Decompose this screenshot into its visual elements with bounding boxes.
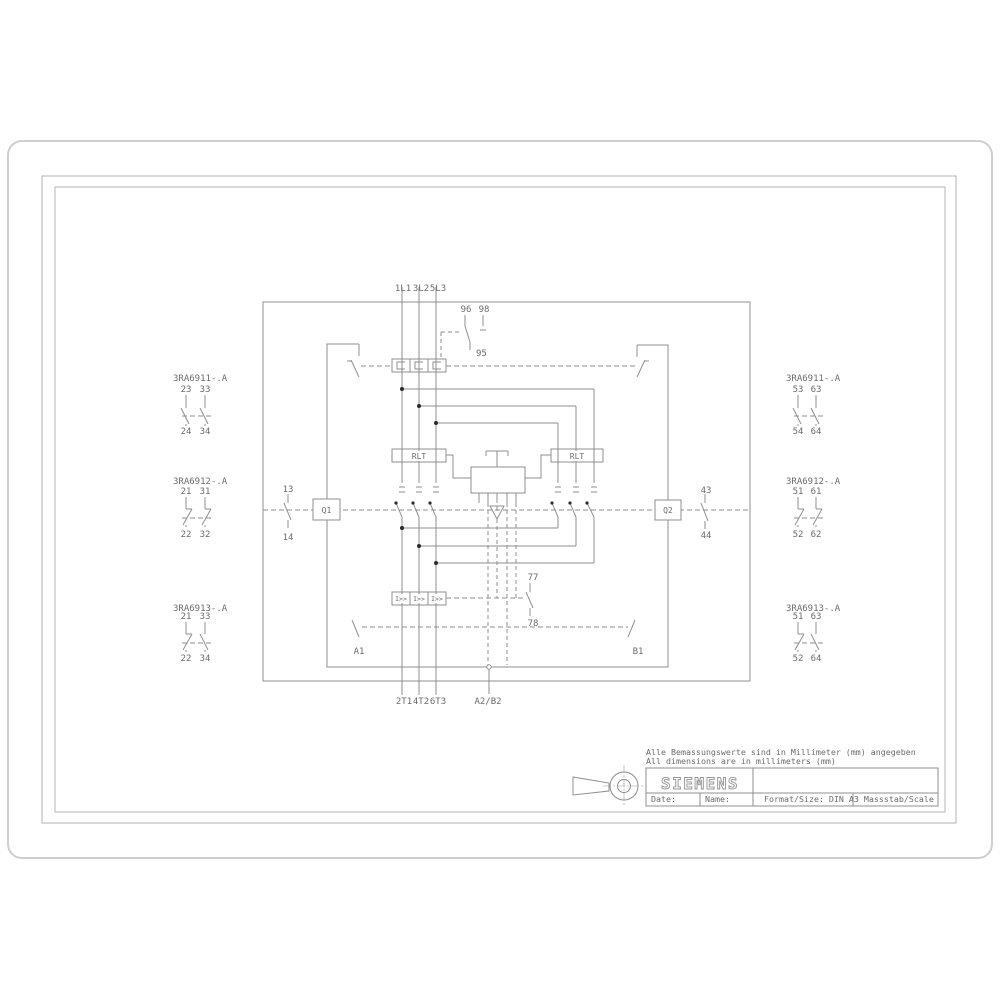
aux-terminal: 31 bbox=[200, 487, 211, 497]
projection-method-icon bbox=[573, 765, 645, 807]
date-label: Date: bbox=[651, 794, 676, 804]
contactor-q2: Q2 bbox=[655, 500, 681, 520]
aux-terminal: 34 bbox=[200, 427, 211, 437]
aux-terminal: 21 bbox=[181, 612, 192, 622]
aux-terminal: 24 bbox=[181, 427, 192, 437]
terminal-3l2: 3L2 bbox=[413, 284, 429, 294]
aux-terminal: 52 bbox=[793, 654, 804, 664]
schematic-canvas: RLT RLT I>> I>> I>> Q1 Q2 1L1 3L2 5L3 2T… bbox=[0, 0, 1000, 1000]
terminal-77: 77 bbox=[528, 573, 539, 583]
aux-terminal: 64 bbox=[811, 654, 822, 664]
aux-part-number: 3RA6912-.A bbox=[173, 477, 228, 487]
aux-block-left-2: 3RA6912-.A 21 31 22 32 bbox=[173, 477, 228, 540]
aux-terminal: 61 bbox=[811, 487, 822, 497]
terminal-a2b2: A2/B2 bbox=[474, 697, 501, 707]
aux-terminal: 33 bbox=[200, 612, 211, 622]
aux-terminal: 34 bbox=[200, 654, 211, 664]
name-label: Name: bbox=[705, 794, 730, 804]
terminal-b1: B1 bbox=[633, 647, 644, 657]
contactor-q1-label: Q1 bbox=[322, 506, 332, 515]
aux-terminal: 22 bbox=[181, 530, 192, 540]
aux-terminal: 52 bbox=[793, 530, 804, 540]
format-size-label: Format/Size: DIN A3 Massstab/Scale bbox=[764, 794, 934, 804]
title-block: Alle Bemassungswerte sind in Millimeter … bbox=[646, 747, 938, 806]
electronics-module bbox=[471, 467, 525, 519]
aux-terminal: 33 bbox=[200, 385, 211, 395]
rlt-right-label: RLT bbox=[570, 452, 585, 461]
note-english: All dimensions are in millimeters (mm) bbox=[646, 756, 836, 766]
terminal-2t1: 2T1 bbox=[396, 697, 412, 707]
rlt-left-label: RLT bbox=[412, 452, 427, 461]
rlt-right-box: RLT bbox=[551, 449, 603, 462]
aux-terminal: 63 bbox=[811, 385, 822, 395]
aux-terminal: 32 bbox=[200, 530, 211, 540]
contactor-q1: Q1 bbox=[313, 499, 340, 520]
overcurrent-label-1: I>> bbox=[395, 595, 407, 603]
aux-block-right-1: 3RA6911-.A 53 63 54 64 bbox=[786, 374, 841, 437]
aux-terminal: 54 bbox=[793, 427, 804, 437]
siemens-logo: SIEMENS bbox=[661, 774, 739, 793]
aux-terminal: 23 bbox=[181, 385, 192, 395]
aux-block-right-3: 3RA6913-.A 51 63 52 64 bbox=[786, 604, 841, 664]
aux-block-left-3: 3RA6913-.A 21 33 22 34 bbox=[173, 604, 228, 664]
aux-part-number: 3RA6911-.A bbox=[173, 374, 228, 384]
terminal-14: 14 bbox=[283, 533, 294, 543]
aux-terminal: 21 bbox=[181, 487, 192, 497]
aux-block-right-2: 3RA6912-.A 51 61 52 62 bbox=[786, 477, 841, 540]
terminal-43: 43 bbox=[701, 486, 712, 496]
aux-part-number: 3RA6911-.A bbox=[786, 374, 841, 384]
terminal-96: 96 bbox=[461, 305, 472, 315]
aux-terminal: 22 bbox=[181, 654, 192, 664]
aux-part-number: 3RA6912-.A bbox=[786, 477, 841, 487]
terminal-6t3: 6T3 bbox=[430, 697, 446, 707]
aux-terminal: 51 bbox=[793, 612, 804, 622]
aux-terminal: 64 bbox=[811, 427, 822, 437]
terminal-95: 95 bbox=[476, 349, 487, 359]
aux-terminal: 63 bbox=[811, 612, 822, 622]
overcurrent-label-3: I>> bbox=[431, 595, 443, 603]
aux-terminal: 51 bbox=[793, 487, 804, 497]
mechanical-link-lines bbox=[182, 332, 825, 665]
terminal-1l1: 1L1 bbox=[395, 284, 411, 294]
aux-block-left-1: 3RA6911-.A 23 33 24 34 bbox=[173, 374, 228, 437]
overcurrent-label-2: I>> bbox=[413, 595, 425, 603]
terminal-78: 78 bbox=[528, 619, 539, 629]
terminal-5l3: 5L3 bbox=[430, 284, 446, 294]
aux-terminal: 62 bbox=[811, 530, 822, 540]
terminal-4t2: 4T2 bbox=[413, 697, 429, 707]
terminal-13: 13 bbox=[283, 485, 294, 495]
terminal-a1: A1 bbox=[354, 647, 365, 657]
terminal-44: 44 bbox=[701, 531, 712, 541]
aux-terminal: 53 bbox=[793, 385, 804, 395]
datasheet-page: RLT RLT I>> I>> I>> Q1 Q2 1L1 3L2 5L3 2T… bbox=[0, 0, 1000, 1000]
contactor-q2-label: Q2 bbox=[663, 506, 673, 515]
terminal-98: 98 bbox=[479, 305, 490, 315]
